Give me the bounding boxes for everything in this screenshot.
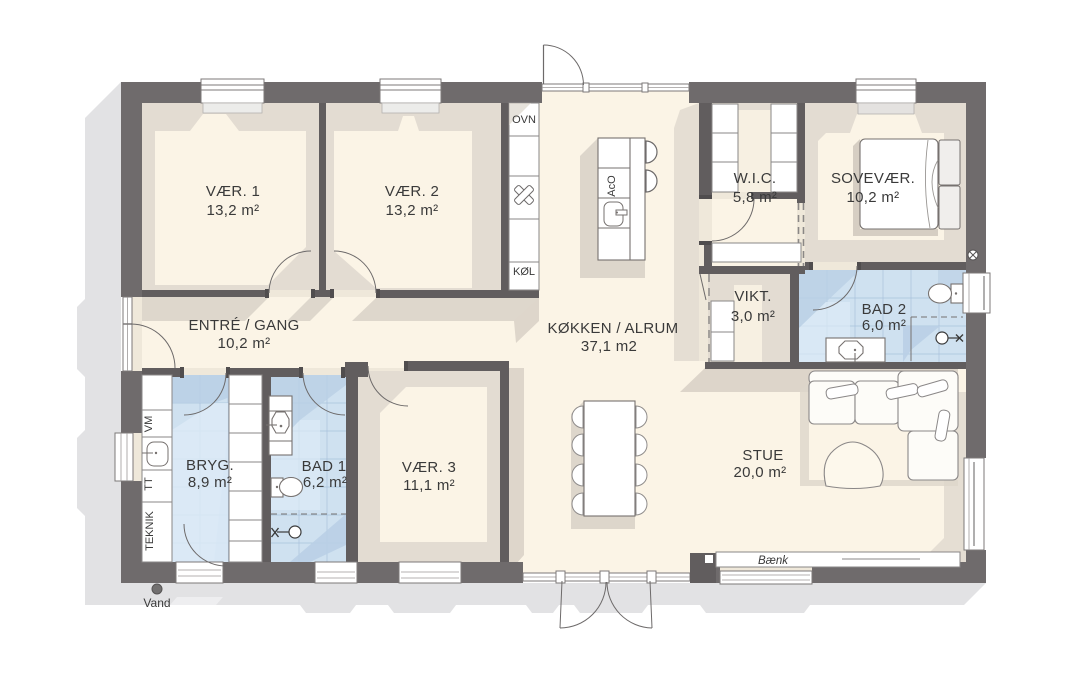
svg-text:5,8 m²: 5,8 m² bbox=[733, 189, 777, 206]
svg-text:KØKKEN / ALRUM: KØKKEN / ALRUM bbox=[548, 320, 679, 337]
svg-text:BAD 2: BAD 2 bbox=[862, 301, 907, 318]
svg-text:SOVEVÆR.: SOVEVÆR. bbox=[831, 170, 915, 187]
svg-text:VIKT.: VIKT. bbox=[734, 288, 771, 305]
svg-text:Bænk: Bænk bbox=[758, 555, 789, 567]
svg-text:13,2 m²: 13,2 m² bbox=[386, 202, 439, 219]
svg-text:STUE: STUE bbox=[742, 447, 783, 464]
svg-text:3,0 m²: 3,0 m² bbox=[731, 308, 775, 325]
svg-text:6,0 m²: 6,0 m² bbox=[862, 317, 906, 334]
svg-text:AcO: AcO bbox=[606, 175, 618, 197]
svg-text:W.I.C.: W.I.C. bbox=[734, 170, 777, 187]
svg-text:37,1 m2: 37,1 m2 bbox=[581, 338, 637, 355]
svg-text:TEKNIK: TEKNIK bbox=[144, 510, 156, 550]
svg-text:11,1 m²: 11,1 m² bbox=[403, 477, 455, 494]
svg-text:Vand: Vand bbox=[143, 596, 170, 610]
svg-text:TT: TT bbox=[143, 477, 155, 491]
svg-text:10,2 m²: 10,2 m² bbox=[218, 335, 271, 352]
svg-text:KØL: KØL bbox=[513, 266, 535, 278]
svg-text:VÆR. 3: VÆR. 3 bbox=[402, 459, 456, 476]
svg-text:OVN: OVN bbox=[512, 114, 536, 126]
svg-text:BRYG.: BRYG. bbox=[186, 457, 234, 474]
svg-text:10,2 m²: 10,2 m² bbox=[847, 189, 900, 206]
svg-text:6,2 m²: 6,2 m² bbox=[303, 474, 347, 491]
svg-text:ENTRÉ / GANG: ENTRÉ / GANG bbox=[188, 317, 299, 334]
svg-text:13,2 m²: 13,2 m² bbox=[207, 202, 260, 219]
svg-text:VÆR. 1: VÆR. 1 bbox=[206, 183, 260, 200]
svg-text:BAD 1: BAD 1 bbox=[302, 458, 347, 475]
svg-text:VM: VM bbox=[143, 416, 155, 433]
svg-text:VÆR. 2: VÆR. 2 bbox=[385, 183, 439, 200]
svg-text:8,9 m²: 8,9 m² bbox=[188, 474, 232, 491]
svg-text:20,0 m²: 20,0 m² bbox=[734, 464, 787, 481]
